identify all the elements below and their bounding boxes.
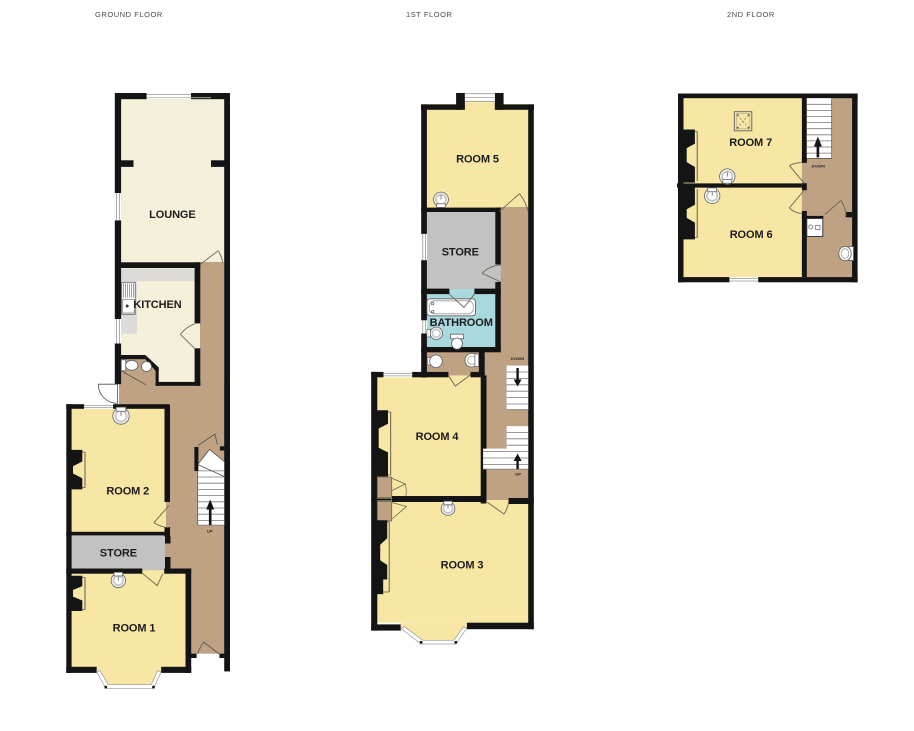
svg-text:ROOM 6: ROOM 6 [730, 229, 773, 241]
svg-text:BATHROOM: BATHROOM [430, 317, 493, 329]
svg-text:ROOM 4: ROOM 4 [416, 431, 460, 443]
svg-text:STORE: STORE [442, 247, 479, 259]
svg-text:KITCHEN: KITCHEN [133, 299, 181, 311]
svg-text:DOWN: DOWN [812, 164, 825, 169]
svg-text:ROOM 7: ROOM 7 [729, 137, 772, 149]
svg-text:DOWN: DOWN [511, 356, 524, 361]
svg-text:UP: UP [207, 529, 213, 534]
svg-text:GROUND FLOOR: GROUND FLOOR [95, 10, 163, 19]
svg-text:ROOM 2: ROOM 2 [106, 486, 149, 498]
svg-text:2ND FLOOR: 2ND FLOOR [727, 10, 775, 19]
svg-text:ROOM 1: ROOM 1 [113, 623, 156, 635]
svg-text:UP: UP [515, 472, 521, 477]
svg-text:STORE: STORE [100, 548, 137, 560]
svg-text:ROOM 3: ROOM 3 [441, 559, 484, 571]
svg-text:1ST FLOOR: 1ST FLOOR [406, 10, 453, 19]
svg-text:ROOM 5: ROOM 5 [456, 154, 499, 166]
svg-text:LOUNGE: LOUNGE [149, 209, 195, 221]
